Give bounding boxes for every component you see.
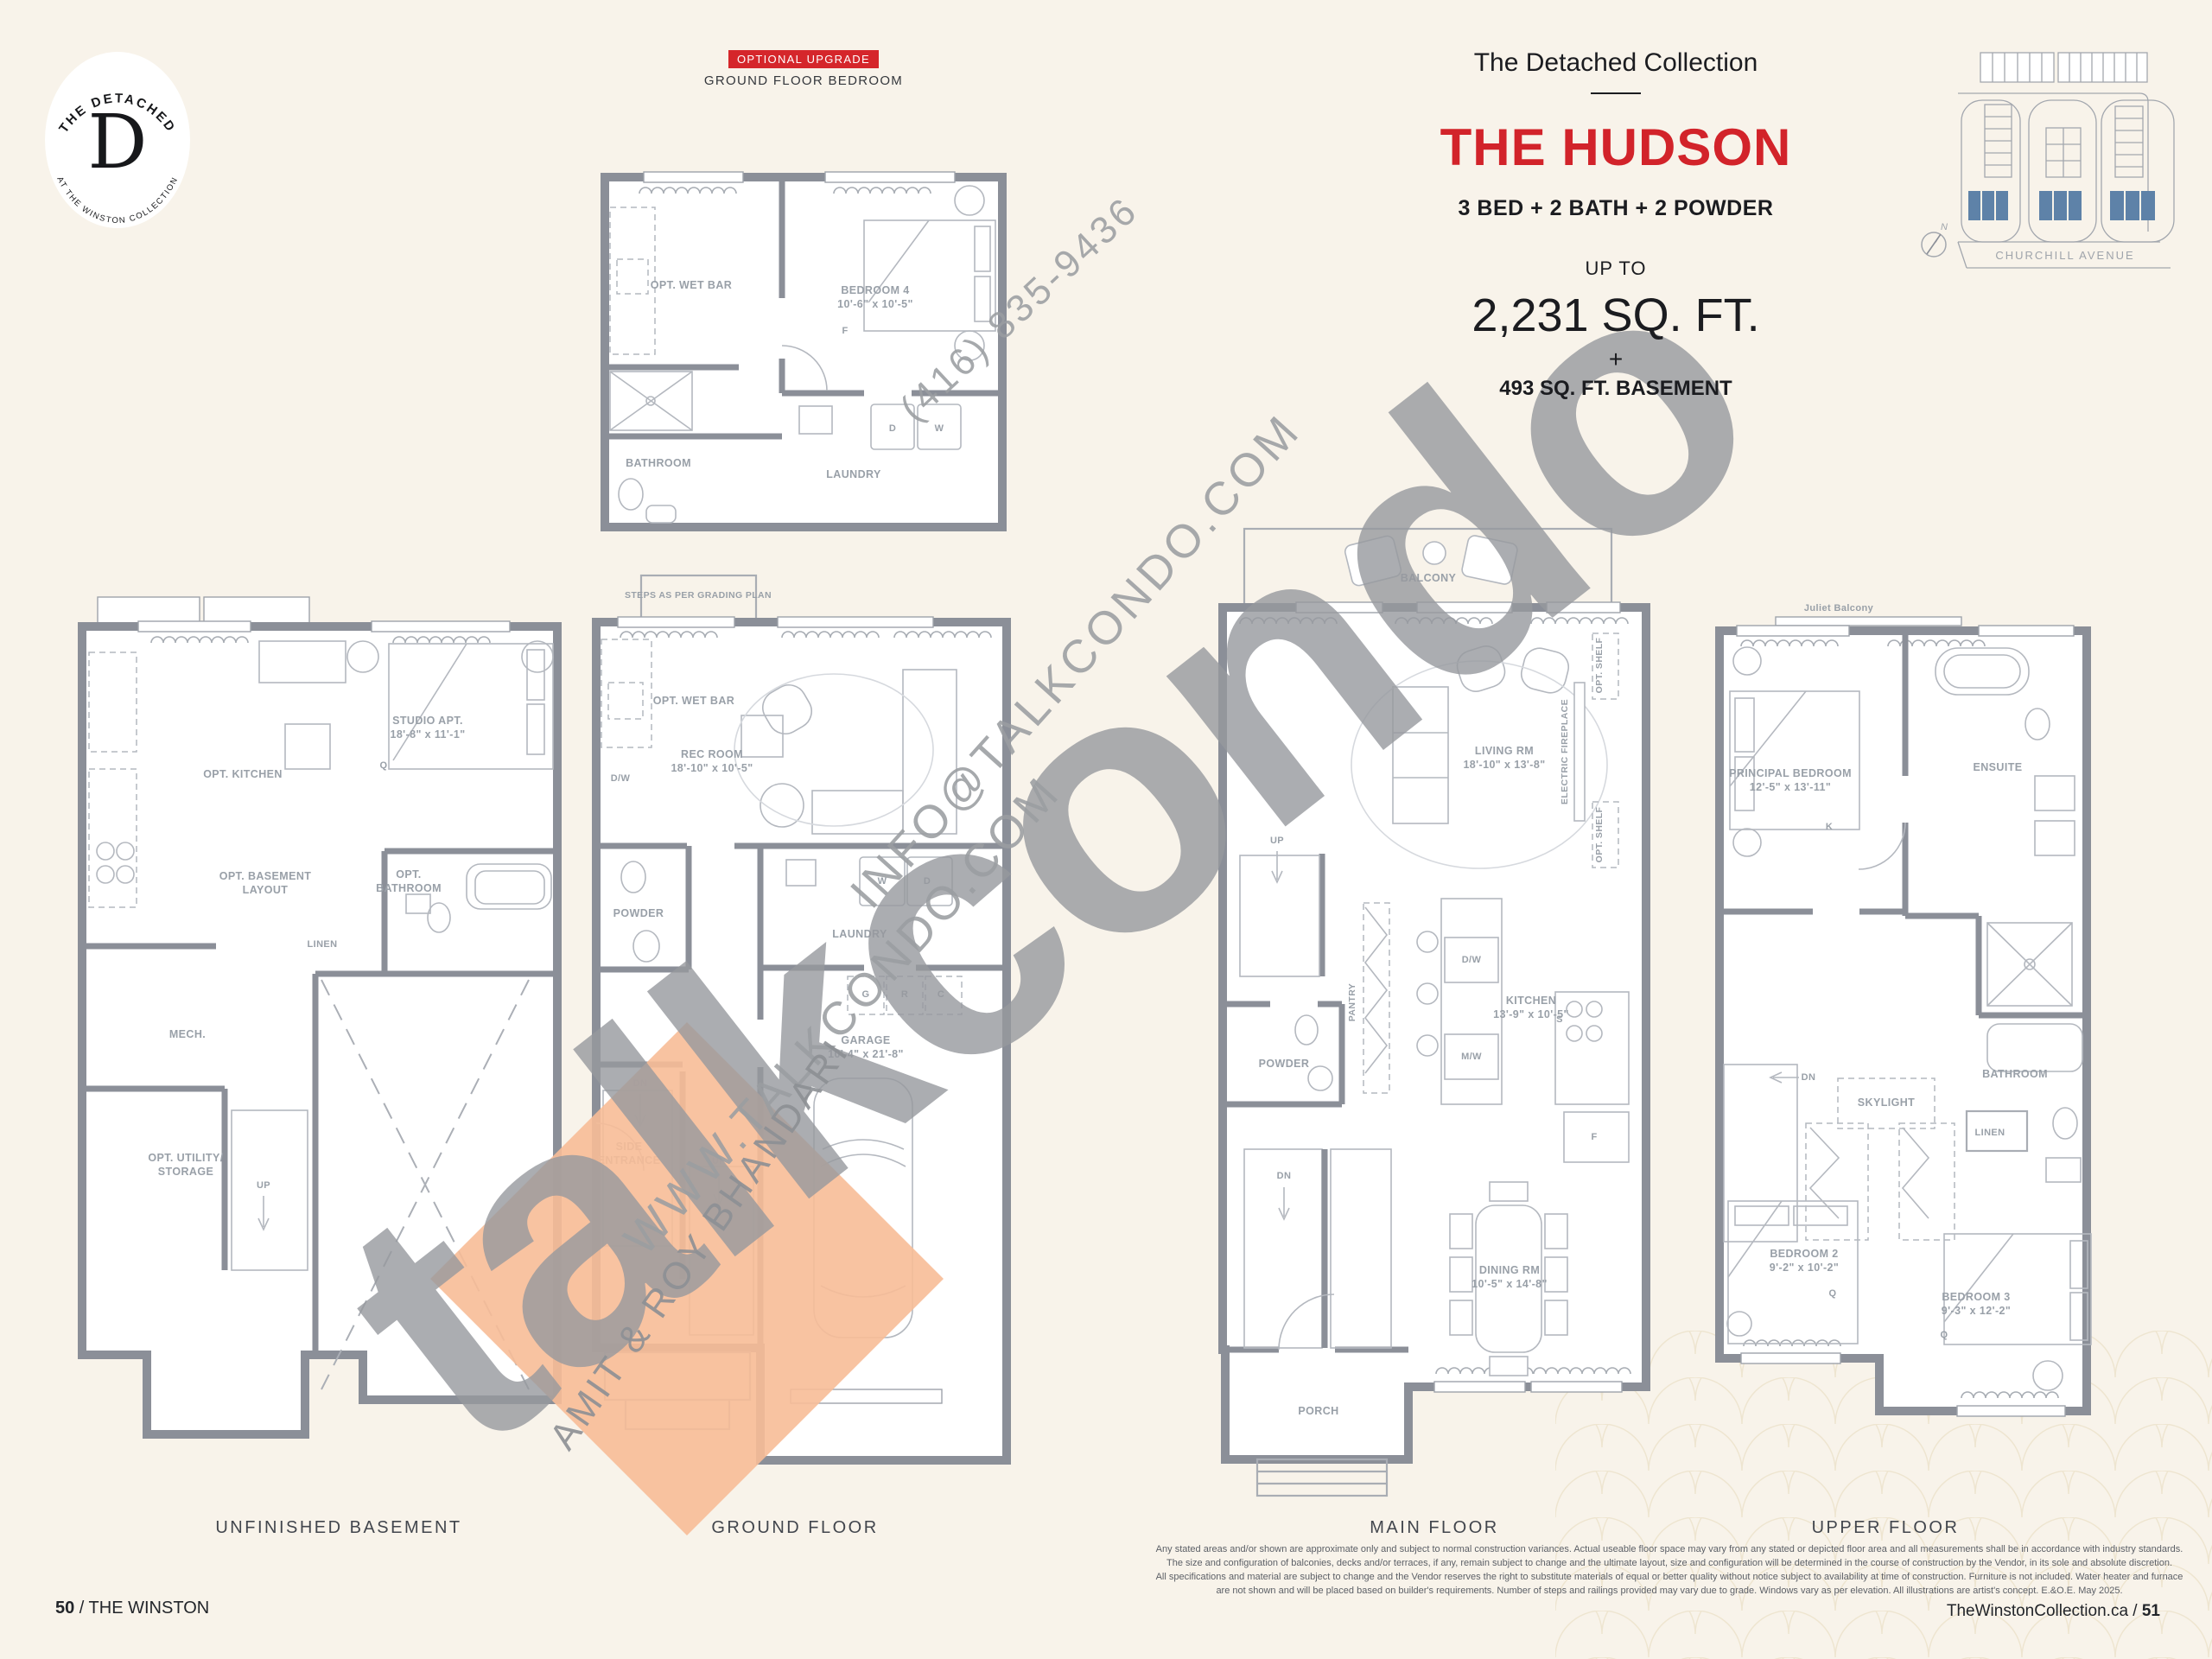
balcony-deck <box>1244 529 1611 608</box>
plus-sign: + <box>1348 346 1884 373</box>
up-to-label: UP TO <box>1348 257 1884 280</box>
site-blocks <box>1961 100 2174 242</box>
site-map: CHURCHILL AVENUE N <box>1884 24 2212 275</box>
caption-main: MAIN FLOOR <box>1370 1518 1498 1538</box>
collection-name: The Detached Collection <box>1348 48 1884 78</box>
porch-steps <box>1257 1459 1387 1496</box>
detached-collection-logo: THE DETACHED AT THE WINSTON COLLECTION D <box>29 40 207 243</box>
model-name: THE HUDSON <box>1348 118 1884 177</box>
optional-upgrade-header: OPTIONAL UPGRADE GROUND FLOOR BEDROOM <box>605 50 1002 88</box>
divider <box>1591 92 1641 94</box>
disclaimer-line: are not shown and will be placed based o… <box>1216 1585 2122 1599</box>
brochure-page: OPT. WET BARBEDROOM 4 10'-6" x 10'-5"FBA… <box>0 0 2212 1659</box>
plan-upgrade <box>605 172 1002 527</box>
square-footage: 2,231 SQ. FT. <box>1348 289 1884 342</box>
site-lots-top <box>1980 53 2147 82</box>
highlighted-hudson-lots <box>1968 191 2155 220</box>
balcony-furniture <box>1344 534 1518 587</box>
juliet-balcony-rail <box>1776 617 1961 626</box>
plan-upper <box>1719 617 2091 1416</box>
plan-basement <box>82 597 557 1434</box>
disclaimer-line: The size and configuration of balconies,… <box>1166 1557 2172 1571</box>
north-compass-icon: N <box>1922 222 1948 257</box>
title-block: The Detached Collection THE HUDSON 3 BED… <box>1348 48 1884 401</box>
caption-ground: GROUND FLOOR <box>711 1518 878 1538</box>
disclaimer: Any stated areas and/or shown are approx… <box>1168 1543 2171 1599</box>
optional-upgrade-badge: OPTIONAL UPGRADE <box>728 50 879 68</box>
street-name: CHURCHILL AVENUE <box>1995 249 2134 262</box>
disclaimer-line: All specifications and material are subj… <box>1156 1571 2183 1585</box>
basement-square-footage: 493 SQ. FT. BASEMENT <box>1348 377 1884 401</box>
disclaimer-line: Any stated areas and/or shown are approx… <box>1156 1543 2183 1557</box>
page-num: 51 <box>2142 1602 2160 1620</box>
bed-bath-specs: 3 BED + 2 BATH + 2 POWDER <box>1348 196 1884 221</box>
fireplace-icon <box>1574 683 1585 821</box>
porch-steps <box>605 1352 750 1429</box>
north-label: N <box>1941 222 1948 232</box>
plan-ground <box>596 575 1007 1460</box>
page-num: 50 <box>55 1599 74 1618</box>
optional-upgrade-label: GROUND FLOOR BEDROOM <box>605 73 1002 88</box>
page-number-right: TheWinstonCollection.ca / 51 <box>1947 1602 2160 1621</box>
caption-basement: UNFINISHED BASEMENT <box>215 1518 461 1538</box>
caption-upper: UPPER FLOOR <box>1812 1518 1960 1538</box>
page-number-left: 50 / THE WINSTON <box>55 1599 209 1618</box>
logo-monogram: D <box>88 99 148 186</box>
plan-main <box>1223 529 1646 1496</box>
